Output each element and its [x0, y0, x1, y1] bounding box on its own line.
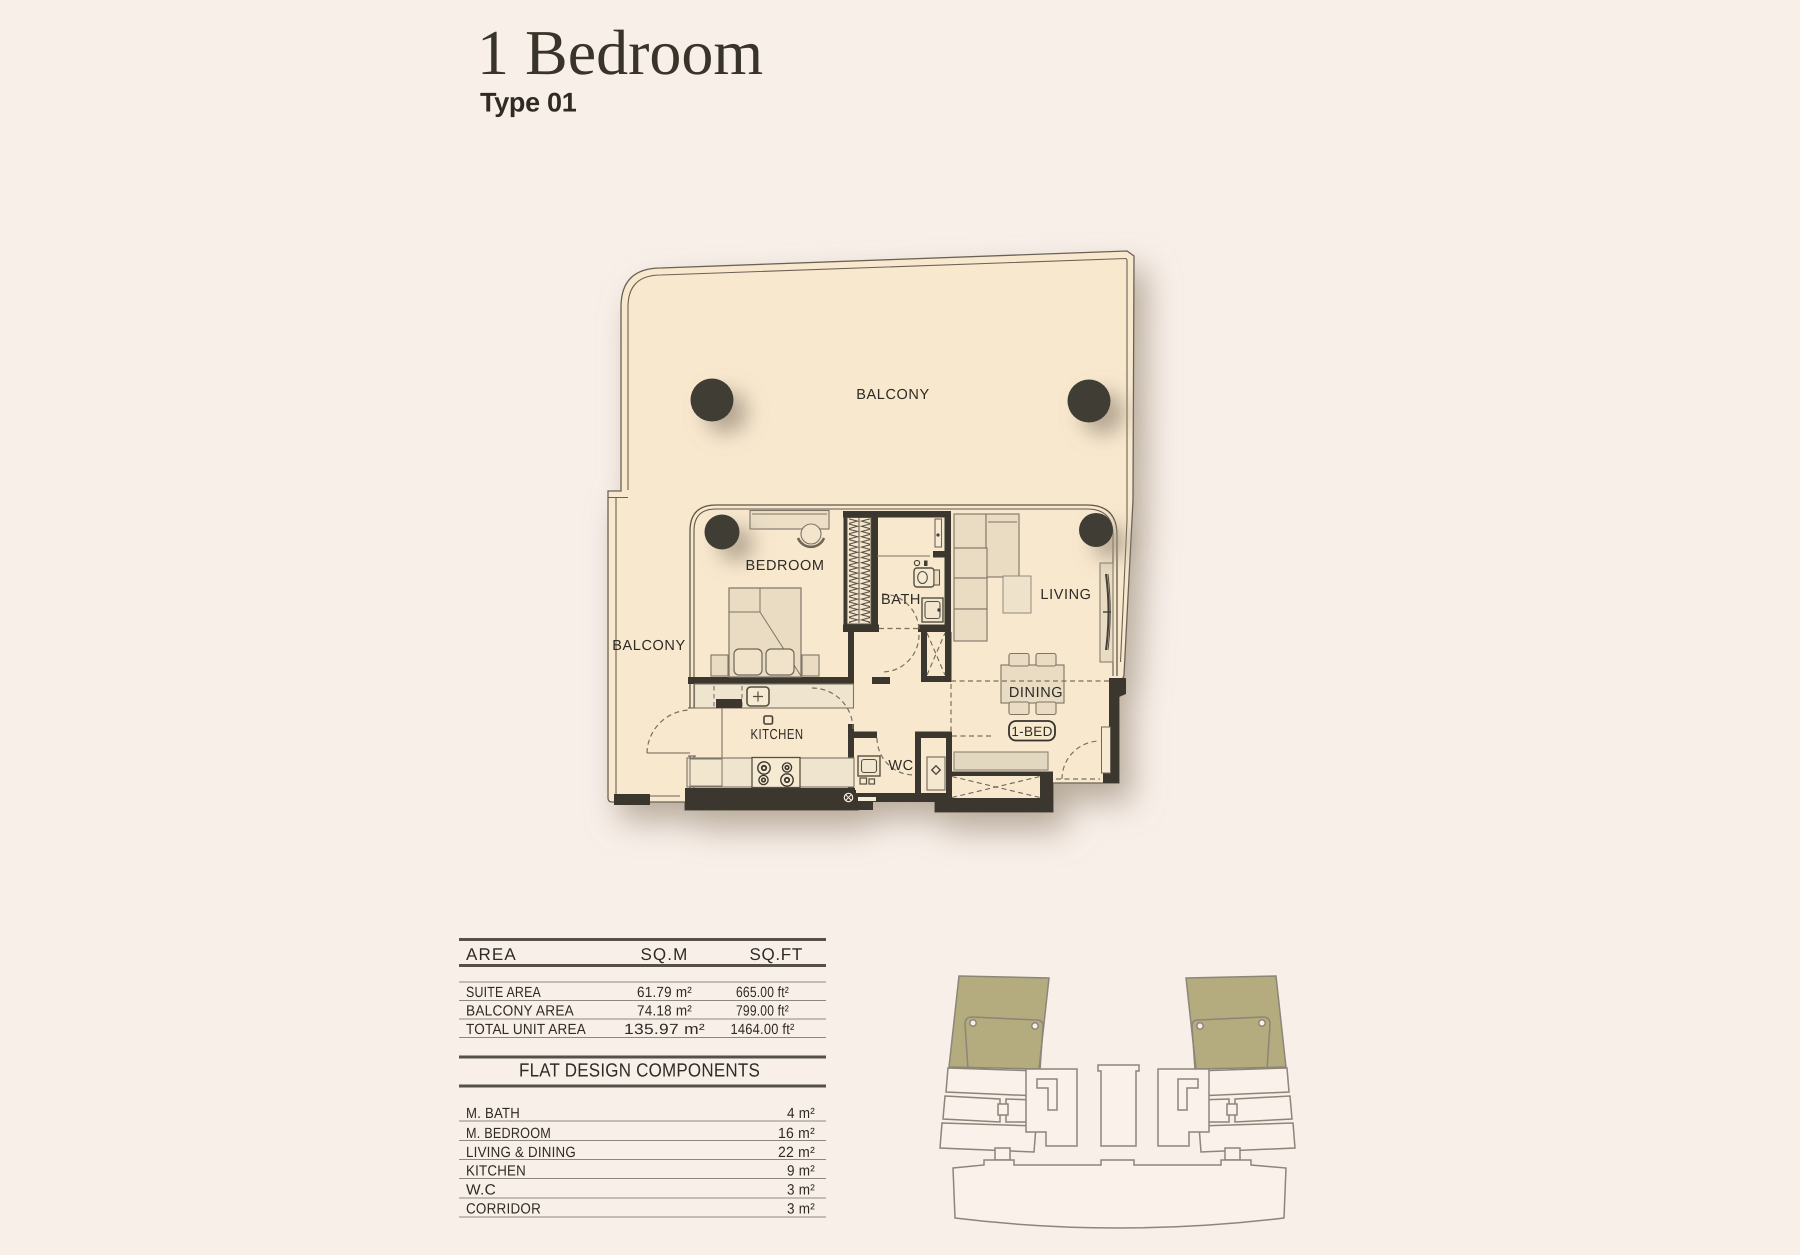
svg-text:DINING: DINING [1009, 685, 1063, 701]
svg-text:BEDROOM: BEDROOM [745, 558, 824, 574]
svg-text:AREA: AREA [466, 945, 516, 964]
svg-text:22 m²: 22 m² [778, 1145, 815, 1161]
svg-text:W.C: W.C [466, 1183, 496, 1199]
svg-text:KITCHEN: KITCHEN [751, 727, 804, 743]
svg-text:CORRIDOR: CORRIDOR [466, 1202, 541, 1218]
svg-text:LIVING: LIVING [1040, 587, 1091, 603]
svg-text:1464.00 ft²: 1464.00 ft² [731, 1022, 795, 1038]
svg-text:3 m²: 3 m² [787, 1183, 815, 1199]
svg-text:3 m²: 3 m² [787, 1202, 815, 1218]
svg-text:FLAT DESIGN COMPONENTS: FLAT DESIGN COMPONENTS [519, 1061, 760, 1082]
svg-text:BALCONY AREA: BALCONY AREA [466, 1004, 574, 1020]
svg-text:4 m²: 4 m² [787, 1106, 815, 1122]
svg-text:665.00 ft²: 665.00 ft² [736, 985, 789, 1001]
svg-text:SUITE AREA: SUITE AREA [466, 985, 541, 1001]
svg-text:16 m²: 16 m² [778, 1126, 815, 1142]
svg-text:135.97 m²: 135.97 m² [624, 1022, 705, 1038]
svg-text:SQ.M: SQ.M [641, 945, 688, 964]
svg-text:M. BEDROOM: M. BEDROOM [466, 1126, 551, 1142]
svg-text:61.79 m²: 61.79 m² [637, 985, 692, 1001]
svg-text:M. BATH: M. BATH [466, 1106, 520, 1122]
svg-text:TOTAL UNIT AREA: TOTAL UNIT AREA [466, 1022, 586, 1038]
svg-text:BALCONY: BALCONY [856, 387, 930, 403]
svg-text:9 m²: 9 m² [787, 1164, 815, 1180]
svg-text:74.18 m²: 74.18 m² [637, 1004, 692, 1020]
svg-text:1-BED: 1-BED [1011, 724, 1052, 739]
svg-text:BALCONY: BALCONY [612, 638, 686, 654]
svg-text:1 Bedroom: 1 Bedroom [477, 17, 763, 88]
svg-text:799.00 ft²: 799.00 ft² [736, 1004, 789, 1020]
svg-text:BATH: BATH [881, 592, 921, 608]
svg-text:SQ.FT: SQ.FT [750, 945, 803, 964]
svg-text:LIVING & DINING: LIVING & DINING [466, 1145, 576, 1161]
svg-text:Type 01: Type 01 [480, 88, 577, 118]
svg-text:WC: WC [888, 758, 913, 774]
svg-text:KITCHEN: KITCHEN [466, 1164, 526, 1180]
